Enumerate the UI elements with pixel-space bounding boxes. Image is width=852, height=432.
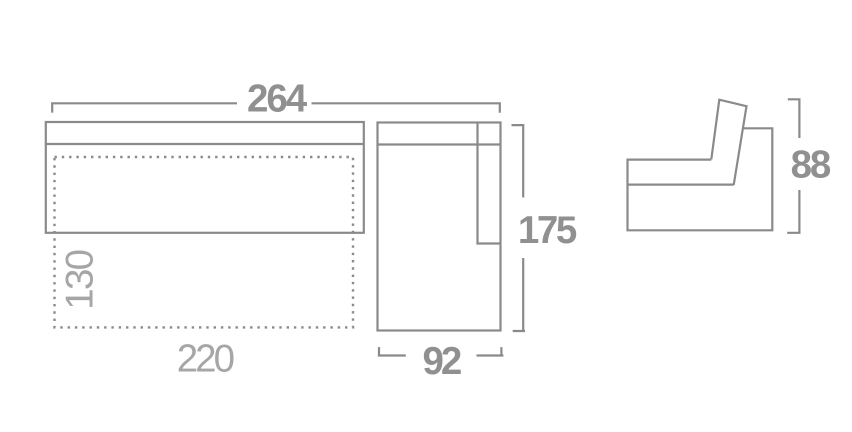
svg-text:175: 175	[518, 209, 577, 252]
svg-text:88: 88	[791, 144, 831, 187]
svg-text:92: 92	[422, 340, 460, 383]
svg-text:130: 130	[58, 250, 101, 309]
svg-text:220: 220	[177, 337, 234, 380]
svg-text:264: 264	[247, 77, 308, 120]
